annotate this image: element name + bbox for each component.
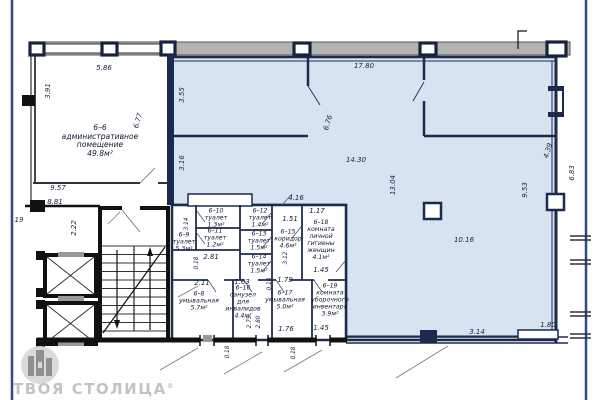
brand-logo-text: ТВОЯ СТОЛИЦА® (13, 380, 174, 398)
wc-block (172, 194, 346, 340)
staircase (98, 208, 170, 342)
brand-name: ТВОЯ СТОЛИЦА (13, 380, 167, 398)
floor-plan-canvas: 6–6 административное помещение 49.8м² 6–… (0, 0, 600, 400)
corridor-wall (25, 200, 100, 212)
registered-mark: ® (167, 382, 174, 390)
brand-logo: ТВОЯ СТОЛИЦА® (0, 344, 240, 400)
admin-room-walls (22, 55, 174, 205)
floor-plan-drawing (0, 0, 600, 400)
elevator-shafts (36, 251, 96, 347)
top-wall (30, 42, 570, 56)
